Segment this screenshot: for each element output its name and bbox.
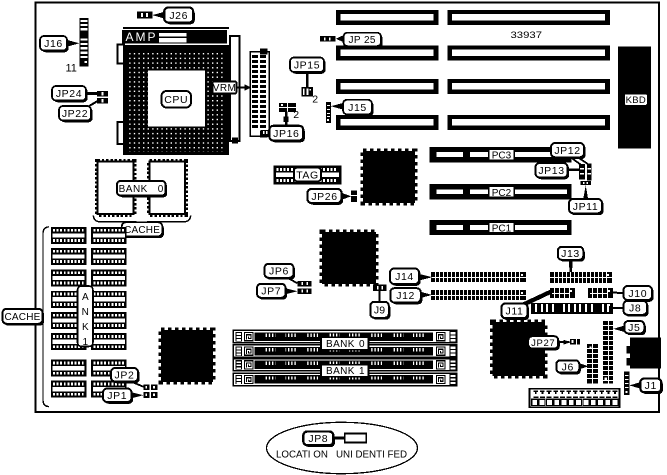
svg-text:J11: J11 (506, 306, 524, 318)
svg-text:TAG: TAG (296, 169, 319, 181)
svg-text:1: 1 (83, 337, 89, 348)
svg-text:J14: J14 (395, 271, 414, 283)
svg-text:BANK: BANK (326, 366, 355, 377)
svg-text:JP2: JP2 (115, 370, 135, 382)
svg-text:JP7: JP7 (261, 286, 281, 298)
svg-text:J1: J1 (645, 380, 657, 392)
svg-text:AMP: AMP (126, 30, 158, 44)
svg-text:CACHE: CACHE (124, 225, 160, 236)
svg-text:N: N (82, 307, 89, 318)
svg-text:CACHE: CACHE (4, 312, 40, 323)
svg-text:J26: J26 (169, 10, 188, 22)
svg-text:2: 2 (312, 94, 318, 106)
svg-text:VRM: VRM (213, 83, 236, 94)
svg-text:J5: J5 (628, 322, 640, 334)
svg-text:JP27: JP27 (531, 338, 555, 349)
svg-text:JP24: JP24 (56, 88, 82, 100)
svg-text:2: 2 (293, 109, 299, 121)
svg-text:A: A (82, 292, 89, 303)
svg-text:J15: J15 (348, 102, 367, 114)
svg-text:JP15: JP15 (294, 60, 320, 72)
svg-text:PC1: PC1 (492, 223, 512, 234)
svg-text:BANK: BANK (326, 339, 355, 350)
svg-text:K: K (82, 322, 89, 333)
svg-text:BANK 0: BANK 0 (119, 184, 164, 195)
svg-text:JP 25: JP 25 (349, 35, 376, 46)
svg-text:1: 1 (359, 366, 365, 377)
svg-text:JP16: JP16 (273, 128, 299, 140)
svg-text:JP8: JP8 (308, 433, 328, 445)
svg-text:11: 11 (66, 63, 77, 75)
svg-text:PC3: PC3 (492, 151, 512, 162)
svg-text:JP12: JP12 (554, 145, 580, 157)
svg-text:0: 0 (359, 339, 365, 350)
svg-text:33937: 33937 (511, 30, 543, 41)
svg-text:JP11: JP11 (573, 201, 599, 213)
svg-text:JP1: JP1 (107, 390, 127, 402)
svg-text:J8: J8 (629, 303, 641, 315)
svg-text:PC2: PC2 (492, 188, 512, 199)
svg-text:J6: J6 (562, 361, 574, 373)
svg-text:LOCATI ON UNI DENTI FED: LOCATI ON UNI DENTI FED (276, 449, 407, 461)
svg-text:J13: J13 (561, 248, 580, 260)
svg-text:J9: J9 (374, 305, 386, 317)
svg-text:J10: J10 (628, 288, 647, 300)
svg-text:JP6: JP6 (269, 266, 289, 278)
svg-text:CPU: CPU (164, 94, 188, 106)
svg-text:KBD: KBD (626, 95, 646, 106)
svg-text:J16: J16 (44, 38, 63, 50)
svg-text:J12: J12 (396, 290, 415, 302)
svg-text:JP13: JP13 (538, 165, 564, 177)
svg-text:JP26: JP26 (311, 191, 337, 203)
svg-text:JP22: JP22 (62, 108, 88, 120)
